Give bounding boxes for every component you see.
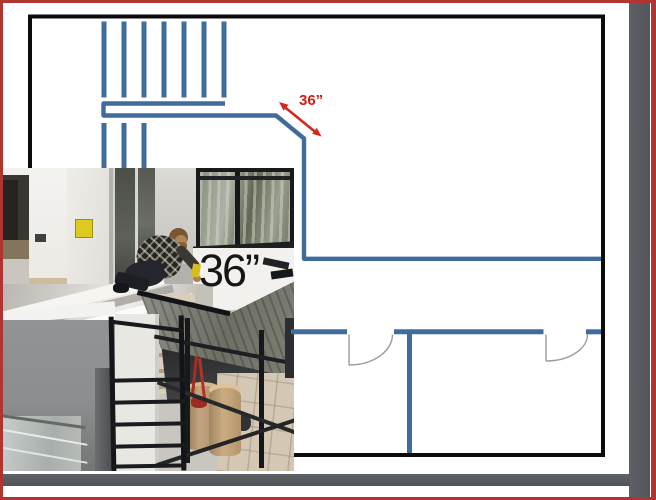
- dimension-label[interactable]: 36”: [299, 92, 323, 109]
- slide-canvas: 36” 36”: [0, 0, 656, 500]
- interior-wall-with-doors[interactable]: [0, 0, 656, 500]
